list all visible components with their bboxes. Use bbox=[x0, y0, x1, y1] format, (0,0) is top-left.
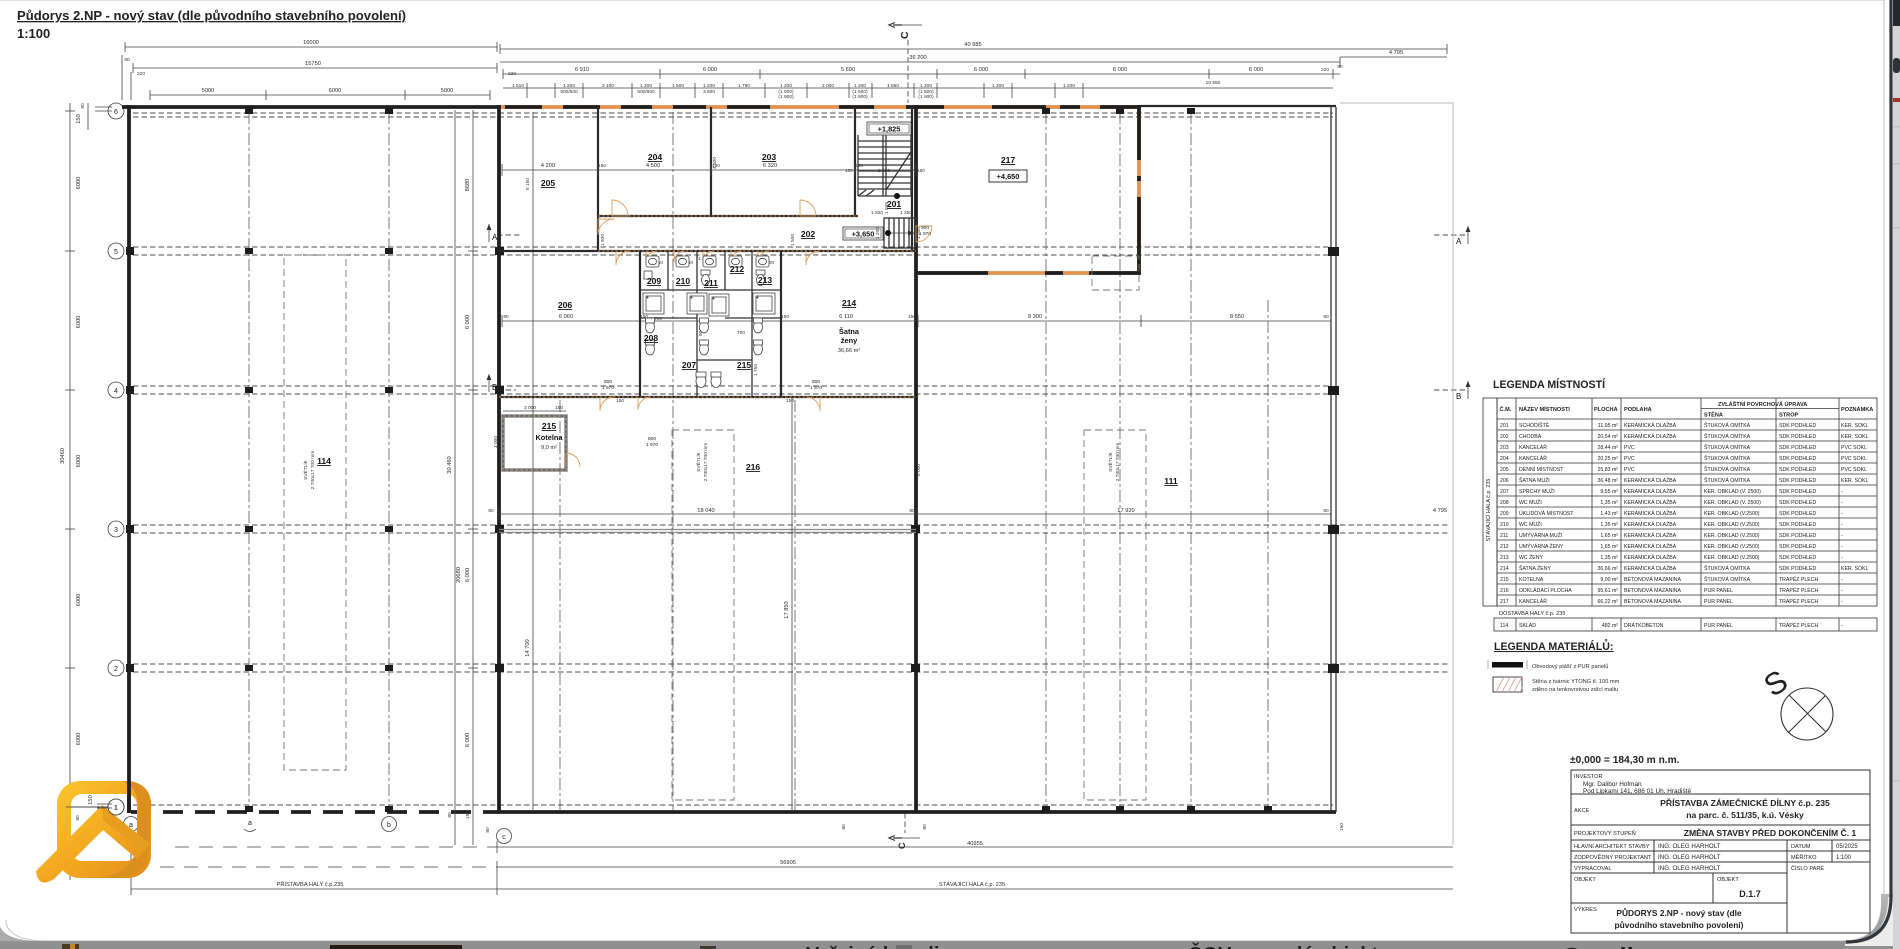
svg-text:800: 800 bbox=[648, 436, 656, 442]
svg-text:ŠTUKOVÁ OMÍTKA: ŠTUKOVÁ OMÍTKA bbox=[1704, 576, 1751, 583]
svg-text:Septik: Septik bbox=[1563, 942, 1642, 949]
svg-text:1 500: 1 500 bbox=[600, 234, 606, 246]
svg-text:-: - bbox=[1841, 522, 1843, 528]
svg-text:SCHODIŠTĚ: SCHODIŠTĚ bbox=[1519, 421, 1550, 429]
svg-text:KER. OBKLAD (V.2500): KER. OBKLAD (V.2500) bbox=[1704, 555, 1760, 561]
svg-text:1 500: 1 500 bbox=[790, 234, 796, 246]
svg-text:6 000: 6 000 bbox=[465, 733, 471, 747]
svg-text:202: 202 bbox=[1500, 434, 1509, 440]
svg-text:1 200: 1 200 bbox=[992, 83, 1004, 89]
svg-text:b: b bbox=[387, 822, 391, 829]
svg-text:212: 212 bbox=[730, 264, 745, 274]
svg-text:ŠTUKOVÁ OMÍTKA: ŠTUKOVÁ OMÍTKA bbox=[1704, 477, 1751, 484]
svg-text:40955: 40955 bbox=[967, 841, 983, 847]
svg-text:1,43 m²: 1,43 m² bbox=[1600, 511, 1618, 517]
svg-text:220: 220 bbox=[508, 71, 516, 77]
svg-text:-: - bbox=[1841, 588, 1843, 594]
svg-text:ŠTUKOVÁ OMÍTKA: ŠTUKOVÁ OMÍTKA bbox=[1704, 444, 1751, 451]
svg-text:150: 150 bbox=[616, 398, 624, 404]
svg-text:9,0 m²: 9,0 m² bbox=[541, 445, 557, 451]
svg-text:1 200: 1 200 bbox=[563, 83, 575, 89]
svg-text:1 850: 1 850 bbox=[887, 83, 899, 89]
svg-text:1 200: 1 200 bbox=[780, 83, 792, 89]
svg-text:ČÍSLO PARÉ: ČÍSLO PARÉ bbox=[1791, 865, 1824, 872]
svg-text:5 690: 5 690 bbox=[841, 67, 855, 73]
svg-text:1:100: 1:100 bbox=[1836, 855, 1852, 861]
svg-text:1,35 m²: 1,35 m² bbox=[1600, 522, 1618, 528]
svg-text:KANCELÁŘ: KANCELÁŘ bbox=[1519, 597, 1547, 605]
svg-text:B: B bbox=[1456, 392, 1461, 401]
svg-text:206: 206 bbox=[1500, 478, 1509, 484]
svg-text:700: 700 bbox=[737, 330, 745, 336]
svg-text:1 510: 1 510 bbox=[512, 83, 524, 89]
svg-text:2 300: 2 300 bbox=[878, 168, 890, 174]
svg-text:KOTELNA: KOTELNA bbox=[1519, 577, 1544, 583]
svg-text:80: 80 bbox=[75, 815, 81, 821]
svg-text:14 700: 14 700 bbox=[525, 639, 531, 656]
svg-text:PVC SOKL: PVC SOKL bbox=[1841, 456, 1867, 462]
svg-text:4 795: 4 795 bbox=[1433, 508, 1447, 514]
svg-text:6 000: 6 000 bbox=[703, 67, 717, 73]
svg-text:C: C bbox=[899, 31, 911, 39]
svg-text:10 550: 10 550 bbox=[1206, 80, 1221, 86]
svg-text:DENNÍ MÍSTNOST: DENNÍ MÍSTNOST bbox=[1519, 466, 1564, 473]
svg-text:PLOCHA: PLOCHA bbox=[1594, 407, 1618, 413]
svg-text:KER. SOKL: KER. SOKL bbox=[1841, 423, 1869, 429]
svg-text:220: 220 bbox=[137, 71, 145, 77]
svg-text:25,83 m²: 25,83 m² bbox=[1598, 467, 1619, 473]
svg-text:500/600: 500/600 bbox=[637, 89, 655, 95]
svg-text:SDK PODHLED: SDK PODHLED bbox=[1779, 533, 1816, 539]
svg-text:+4,650: +4,650 bbox=[997, 172, 1020, 181]
svg-text:206: 206 bbox=[558, 300, 573, 310]
svg-text:SDK PODHLED: SDK PODHLED bbox=[1779, 555, 1816, 561]
svg-text:150: 150 bbox=[88, 795, 94, 805]
svg-text:VYPRACOVAL: VYPRACOVAL bbox=[1574, 866, 1612, 872]
svg-text:150: 150 bbox=[555, 405, 563, 411]
svg-text:1 200: 1 200 bbox=[1063, 83, 1075, 89]
svg-text:4: 4 bbox=[114, 388, 118, 395]
svg-text:1 000: 1 000 bbox=[822, 83, 834, 89]
svg-text:1 970: 1 970 bbox=[646, 442, 658, 448]
svg-text:PVC: PVC bbox=[1624, 445, 1635, 451]
svg-text:80: 80 bbox=[447, 812, 453, 818]
svg-text:PUR PANEL: PUR PANEL bbox=[1704, 588, 1733, 594]
svg-text:SKLAD: SKLAD bbox=[1519, 623, 1536, 629]
svg-text:KERAMICKÁ DLAŽBA: KERAMICKÁ DLAŽBA bbox=[1624, 498, 1677, 506]
svg-text:WC MUŽI: WC MUŽI bbox=[1519, 498, 1542, 506]
svg-text:1 320: 1 320 bbox=[871, 210, 883, 216]
svg-text:SPRCHY MUŽI: SPRCHY MUŽI bbox=[1519, 487, 1555, 495]
svg-text:6000: 6000 bbox=[329, 88, 342, 94]
svg-text:4 500: 4 500 bbox=[646, 163, 660, 169]
svg-text:30 460: 30 460 bbox=[447, 456, 453, 473]
svg-text:OBJEKT: OBJEKT bbox=[1717, 877, 1739, 883]
svg-text:WC ŽENY: WC ŽENY bbox=[1519, 553, 1543, 561]
svg-text:SDK PODHLED: SDK PODHLED bbox=[1779, 511, 1816, 517]
svg-text:c: c bbox=[502, 834, 506, 841]
svg-text:-: - bbox=[1841, 555, 1843, 561]
svg-text:4 200: 4 200 bbox=[541, 163, 555, 169]
svg-text:STÁVAJÍCÍ HALA č.p. 235: STÁVAJÍCÍ HALA č.p. 235 bbox=[1485, 479, 1492, 542]
svg-text:SDK PODHLED: SDK PODHLED bbox=[1779, 544, 1816, 550]
svg-text:2 700x17 700 mm: 2 700x17 700 mm bbox=[703, 443, 709, 481]
svg-text:215: 215 bbox=[1500, 577, 1509, 583]
svg-text:TRAPÉZ PLECH: TRAPÉZ PLECH bbox=[1779, 587, 1818, 594]
svg-text:KERAMICKÁ DLAŽBA: KERAMICKÁ DLAŽBA bbox=[1624, 487, 1677, 495]
svg-text:80: 80 bbox=[1323, 314, 1329, 320]
svg-text:ŠATNA ŽENY: ŠATNA ŽENY bbox=[1519, 564, 1551, 572]
svg-text:KER. SOKL: KER. SOKL bbox=[1841, 478, 1869, 484]
svg-text:PUR PANEL: PUR PANEL bbox=[1704, 599, 1733, 605]
svg-text:SDK PODHLED: SDK PODHLED bbox=[1779, 445, 1816, 451]
svg-text:6000: 6000 bbox=[76, 177, 82, 190]
svg-text:80: 80 bbox=[922, 824, 928, 830]
svg-text:BETONOVÁ MAZANINA: BETONOVÁ MAZANINA bbox=[1624, 576, 1682, 583]
svg-text:80: 80 bbox=[80, 103, 86, 109]
svg-text:TRAPÉZ PLECH: TRAPÉZ PLECH bbox=[1779, 598, 1818, 605]
svg-text:SDK PODHLED: SDK PODHLED bbox=[1779, 522, 1816, 528]
svg-text:+1,825: +1,825 bbox=[878, 125, 901, 134]
svg-text:1,35 m²: 1,35 m² bbox=[1600, 500, 1618, 506]
svg-text:PŮDORYS 2.NP - nový stav (dle: PŮDORYS 2.NP - nový stav (dle bbox=[1616, 907, 1742, 918]
svg-text:6000: 6000 bbox=[76, 594, 82, 607]
svg-text:ZVLÁŠTNÍ POVRCHOVÁ ÚPRAVA: ZVLÁŠTNÍ POVRCHOVÁ ÚPRAVA bbox=[1718, 400, 1807, 408]
svg-text:2 100: 2 100 bbox=[602, 83, 614, 89]
svg-text:KERAMICKÁ DLAŽBA: KERAMICKÁ DLAŽBA bbox=[1624, 520, 1677, 528]
svg-text:6 000: 6 000 bbox=[465, 315, 471, 329]
svg-text:17 850: 17 850 bbox=[784, 601, 790, 618]
svg-text:SDK PODHLED: SDK PODHLED bbox=[1779, 456, 1816, 462]
svg-text:(1 900): (1 900) bbox=[918, 94, 934, 100]
svg-text:6 000: 6 000 bbox=[465, 568, 471, 582]
svg-text:KER. OBKLAD (V. 2500): KER. OBKLAD (V. 2500) bbox=[1704, 500, 1761, 506]
svg-text:1 500: 1 500 bbox=[672, 83, 684, 89]
svg-text:208: 208 bbox=[644, 333, 659, 343]
svg-text:1 970: 1 970 bbox=[810, 385, 822, 391]
svg-text:20,54 m²: 20,54 m² bbox=[1598, 434, 1619, 440]
svg-text:POZNÁMKA: POZNÁMKA bbox=[1841, 406, 1873, 413]
svg-text:KERAMICKÁ DLAŽBA: KERAMICKÁ DLAŽBA bbox=[1624, 553, 1677, 561]
svg-text:220: 220 bbox=[1321, 67, 1329, 73]
svg-text:±0,000 = 184,30 m n.m.: ±0,000 = 184,30 m n.m. bbox=[1570, 755, 1680, 766]
svg-text:PŘÍSTAVBA HALY č.p.235: PŘÍSTAVBA HALY č.p.235 bbox=[277, 880, 344, 888]
svg-text:150: 150 bbox=[781, 314, 789, 320]
svg-text:4 500: 4 500 bbox=[712, 157, 718, 169]
svg-text:80: 80 bbox=[488, 508, 494, 514]
svg-text:+3,650: +3,650 bbox=[852, 230, 875, 239]
svg-text:95,61 m²: 95,61 m² bbox=[1598, 588, 1619, 594]
svg-text:150: 150 bbox=[598, 163, 606, 169]
svg-text:(1 900): (1 900) bbox=[852, 94, 868, 100]
svg-text:KER. OBKLAD (V. 2500): KER. OBKLAD (V. 2500) bbox=[1704, 489, 1761, 495]
svg-text:211: 211 bbox=[1500, 533, 1508, 539]
svg-text:ŠTUKOVÁ OMÍTKA: ŠTUKOVÁ OMÍTKA bbox=[1704, 565, 1751, 572]
svg-text:Půdorys 2.NP - nový stav (dle: Půdorys 2.NP - nový stav (dle původního … bbox=[17, 8, 406, 23]
svg-text:D.1.7: D.1.7 bbox=[1739, 889, 1761, 899]
svg-text:KANCELÁŘ: KANCELÁŘ bbox=[1519, 454, 1547, 462]
svg-text:Č.M.: Č.M. bbox=[1500, 406, 1512, 413]
svg-text:ING. OLEG HARHOLT: ING. OLEG HARHOLT bbox=[1658, 843, 1721, 850]
svg-text:208: 208 bbox=[1500, 500, 1509, 506]
svg-text:PODLAHA: PODLAHA bbox=[1624, 407, 1652, 413]
svg-text:A: A bbox=[1456, 237, 1462, 246]
svg-text:482 m²: 482 m² bbox=[1602, 623, 1618, 629]
svg-text:800: 800 bbox=[604, 379, 612, 385]
svg-text:KER. OBKLAD (V.2500): KER. OBKLAD (V.2500) bbox=[1704, 511, 1760, 517]
svg-text:5000: 5000 bbox=[441, 88, 454, 94]
svg-text:204: 204 bbox=[648, 152, 663, 162]
svg-text:150: 150 bbox=[855, 163, 863, 169]
svg-text:4 795: 4 795 bbox=[1389, 50, 1403, 56]
svg-text:209: 209 bbox=[1500, 511, 1509, 517]
svg-text:217: 217 bbox=[1001, 155, 1016, 165]
svg-text:ŠTUKOVÁ OMÍTKA: ŠTUKOVÁ OMÍTKA bbox=[1704, 422, 1751, 429]
svg-text:212: 212 bbox=[1500, 544, 1509, 550]
svg-text:8680: 8680 bbox=[465, 179, 471, 192]
svg-text:150: 150 bbox=[917, 168, 925, 174]
svg-text:6000: 6000 bbox=[76, 455, 82, 468]
svg-text:ŠTUKOVÁ OMÍTKA: ŠTUKOVÁ OMÍTKA bbox=[1704, 433, 1751, 440]
svg-text:PUR PANEL: PUR PANEL bbox=[1704, 623, 1733, 629]
svg-text:KER. OBKLAD (V.2500): KER. OBKLAD (V.2500) bbox=[1704, 544, 1760, 550]
svg-text:MĚŘÍTKO: MĚŘÍTKO bbox=[1791, 853, 1817, 861]
svg-text:3 600: 3 600 bbox=[703, 89, 715, 95]
svg-text:C: C bbox=[897, 842, 907, 849]
svg-text:1 970: 1 970 bbox=[919, 231, 931, 237]
svg-text:66,22 m²: 66,22 m² bbox=[1598, 599, 1619, 605]
svg-text:900: 900 bbox=[921, 225, 929, 231]
svg-text:80: 80 bbox=[124, 57, 130, 63]
svg-text:na parc. č. 511/35, k.ú. Vésky: na parc. č. 511/35, k.ú. Vésky bbox=[1686, 810, 1804, 820]
svg-text:-: - bbox=[1841, 577, 1843, 583]
svg-text:1 790: 1 790 bbox=[738, 83, 750, 89]
svg-text:OBJEKT: OBJEKT bbox=[1574, 877, 1596, 883]
svg-text:5000: 5000 bbox=[202, 88, 215, 94]
svg-text:2 700x17 700 mm: 2 700x17 700 mm bbox=[1115, 443, 1121, 481]
svg-text:KERAMICKÁ DLAŽBA: KERAMICKÁ DLAŽBA bbox=[1624, 542, 1677, 550]
svg-text:ZODPOVĚDNÝ PROJEKTANT: ZODPOVĚDNÝ PROJEKTANT bbox=[1574, 853, 1652, 861]
svg-text:LEGENDA MATERIÁLŮ:: LEGENDA MATERIÁLŮ: bbox=[1494, 639, 1613, 653]
svg-text:Kotelna: Kotelna bbox=[535, 433, 563, 442]
svg-text:Obvodový plášť z PUR panelů: Obvodový plášť z PUR panelů bbox=[1532, 663, 1608, 670]
svg-text:80: 80 bbox=[841, 824, 847, 830]
svg-text:ŠATNA MUŽI: ŠATNA MUŽI bbox=[1519, 476, 1550, 484]
svg-text:ODKLÁDACÍ PLOCHA: ODKLÁDACÍ PLOCHA bbox=[1519, 587, 1572, 594]
svg-text:SDK PODHLED: SDK PODHLED bbox=[1779, 489, 1816, 495]
svg-text:215: 215 bbox=[542, 421, 557, 431]
svg-text:6 000: 6 000 bbox=[916, 464, 922, 476]
svg-text:150: 150 bbox=[845, 168, 853, 174]
svg-text:STÁVAJÍCÍ HALA č.p. 235: STÁVAJÍCÍ HALA č.p. 235 bbox=[939, 881, 1005, 888]
svg-text:80: 80 bbox=[1337, 64, 1343, 70]
svg-text:1 200: 1 200 bbox=[854, 83, 866, 89]
svg-text:SDK PODHLED: SDK PODHLED bbox=[1779, 467, 1816, 473]
svg-text:800: 800 bbox=[812, 379, 820, 385]
svg-text:-: - bbox=[1841, 500, 1843, 506]
svg-text:TRAPÉZ PLECH: TRAPÉZ PLECH bbox=[1779, 576, 1818, 583]
svg-text:Šatna: Šatna bbox=[839, 327, 860, 336]
svg-text:ŠTUKOVÁ OMÍTKA: ŠTUKOVÁ OMÍTKA bbox=[1704, 455, 1751, 462]
svg-text:150: 150 bbox=[908, 314, 916, 320]
svg-text:15750: 15750 bbox=[305, 61, 321, 67]
svg-text:ŠTUKOVÁ OMÍTKA: ŠTUKOVÁ OMÍTKA bbox=[1704, 466, 1751, 473]
svg-text:18 040: 18 040 bbox=[697, 508, 714, 514]
svg-text:KERAMICKÁ DLAŽBA: KERAMICKÁ DLAŽBA bbox=[1624, 509, 1677, 517]
svg-text:217: 217 bbox=[1500, 599, 1509, 605]
svg-text:-: - bbox=[1841, 511, 1843, 517]
svg-text:150: 150 bbox=[786, 398, 794, 404]
svg-text:216: 216 bbox=[746, 462, 761, 472]
svg-text:SDK PODHLED: SDK PODHLED bbox=[1779, 423, 1816, 429]
svg-text:6: 6 bbox=[114, 109, 118, 116]
svg-text:213: 213 bbox=[1500, 555, 1509, 561]
svg-text:1 750: 1 750 bbox=[753, 364, 759, 376]
svg-text:215: 215 bbox=[737, 360, 752, 370]
svg-text:KERAMICKÁ DLAŽBA: KERAMICKÁ DLAŽBA bbox=[1624, 432, 1677, 440]
svg-text:216: 216 bbox=[1500, 588, 1509, 594]
svg-text:80: 80 bbox=[1323, 508, 1329, 514]
svg-text:PROJEKTOVÝ STUPEŇ: PROJEKTOVÝ STUPEŇ bbox=[1574, 830, 1636, 837]
svg-text:36,66 m²: 36,66 m² bbox=[1598, 566, 1619, 572]
svg-text:SDK PODHLED: SDK PODHLED bbox=[1779, 500, 1816, 506]
svg-text:6 320: 6 320 bbox=[763, 163, 777, 169]
svg-text:a: a bbox=[248, 820, 252, 827]
svg-text:-: - bbox=[1841, 544, 1843, 550]
svg-text:214: 214 bbox=[1500, 566, 1509, 572]
svg-text:204: 204 bbox=[1500, 456, 1509, 462]
svg-text:28,44 m²: 28,44 m² bbox=[1598, 445, 1619, 451]
svg-text:STĚNA: STĚNA bbox=[1704, 411, 1723, 419]
svg-text:114: 114 bbox=[317, 456, 331, 466]
svg-text:202: 202 bbox=[801, 229, 816, 239]
svg-text:201: 201 bbox=[887, 199, 902, 209]
svg-text:9,55 m²: 9,55 m² bbox=[1600, 489, 1618, 495]
svg-text:36,66 m²: 36,66 m² bbox=[838, 348, 861, 354]
svg-text:80: 80 bbox=[909, 508, 915, 514]
svg-text:BETONOVÁ MAZANINA: BETONOVÁ MAZANINA bbox=[1624, 598, 1682, 605]
svg-text:KANCELÁŘ: KANCELÁŘ bbox=[1519, 443, 1547, 451]
svg-text:36,48 m²: 36,48 m² bbox=[1598, 478, 1619, 484]
svg-text:původního stavebního povolení): původního stavebního povolení) bbox=[1615, 920, 1744, 930]
svg-text:36 200: 36 200 bbox=[909, 55, 926, 61]
svg-text:6 000: 6 000 bbox=[1113, 67, 1127, 73]
svg-text:6 910: 6 910 bbox=[575, 67, 589, 73]
svg-text:Pod Lipkami 141, 686 01 Uh. Hr: Pod Lipkami 141, 686 01 Uh. Hradiště bbox=[1583, 788, 1691, 795]
svg-text:-: - bbox=[1841, 489, 1843, 495]
svg-text:6 150: 6 150 bbox=[525, 178, 531, 190]
svg-text:1 200: 1 200 bbox=[920, 83, 932, 89]
svg-text:213: 213 bbox=[758, 275, 773, 285]
svg-text:KER. OBKLAD (V.2500): KER. OBKLAD (V.2500) bbox=[1704, 522, 1760, 528]
svg-text:DRÁTKOBETON: DRÁTKOBETON bbox=[1624, 622, 1664, 629]
svg-text:203: 203 bbox=[762, 152, 777, 162]
svg-text:KER. SOKL: KER. SOKL bbox=[1841, 434, 1869, 440]
svg-text:SDK PODHLED: SDK PODHLED bbox=[1779, 478, 1816, 484]
svg-text:BETONOVÁ MAZANINA: BETONOVÁ MAZANINA bbox=[1624, 587, 1682, 594]
svg-text:NÁZEV MÍSTNOSTI: NÁZEV MÍSTNOSTI bbox=[1519, 405, 1570, 413]
svg-text:-: - bbox=[1841, 599, 1843, 605]
svg-text:114: 114 bbox=[1500, 623, 1508, 629]
svg-text:211: 211 bbox=[704, 278, 718, 288]
svg-text:ÚKLIDOVÁ MÍSTNOST: ÚKLIDOVÁ MÍSTNOST bbox=[1519, 510, 1574, 517]
svg-text:PVC: PVC bbox=[1624, 456, 1635, 462]
svg-text:1 250: 1 250 bbox=[900, 210, 912, 216]
svg-text:150: 150 bbox=[1339, 823, 1345, 831]
svg-text:2: 2 bbox=[114, 666, 118, 673]
svg-text:1 200: 1 200 bbox=[875, 227, 881, 239]
svg-text:6000: 6000 bbox=[76, 733, 82, 746]
svg-text:1,65 m²: 1,65 m² bbox=[1600, 544, 1618, 550]
svg-text:zděno na tenkovrstvou zdící ma: zděno na tenkovrstvou zdící maltu bbox=[1532, 687, 1618, 693]
svg-text:PVC SOKL: PVC SOKL bbox=[1841, 467, 1867, 473]
svg-text:KERAMICKÁ DLAŽBA: KERAMICKÁ DLAŽBA bbox=[1624, 531, 1677, 539]
svg-text:210: 210 bbox=[676, 276, 691, 286]
svg-text:6 000: 6 000 bbox=[1249, 67, 1263, 73]
svg-text:1,35 m²: 1,35 m² bbox=[1600, 555, 1618, 561]
svg-text:CHODBA: CHODBA bbox=[1519, 434, 1542, 440]
svg-text:214: 214 bbox=[842, 298, 857, 308]
svg-text:-: - bbox=[1841, 623, 1843, 629]
svg-text:Stěna z tvárnic YTONG tl. 100: Stěna z tvárnic YTONG tl. 100 mm bbox=[1532, 679, 1620, 685]
svg-text:Mgr. Dalibor Hofman: Mgr. Dalibor Hofman bbox=[1583, 781, 1642, 788]
svg-text:205: 205 bbox=[541, 178, 556, 188]
svg-text:ING. OLEG HARHOLT: ING. OLEG HARHOLT bbox=[1658, 865, 1721, 872]
svg-text:1,65 m²: 1,65 m² bbox=[1600, 533, 1618, 539]
svg-text:ING. OLEG HARHOLT: ING. OLEG HARHOLT bbox=[1658, 854, 1721, 861]
svg-text:UMÝVÁRNA MUŽI: UMÝVÁRNA MUŽI bbox=[1519, 531, 1562, 539]
svg-text:207: 207 bbox=[1500, 489, 1509, 495]
svg-text:HLAVNÍ ARCHITEKT STAVBY: HLAVNÍ ARCHITEKT STAVBY bbox=[1574, 843, 1650, 850]
svg-text:6 060: 6 060 bbox=[559, 314, 573, 320]
svg-text:3 000: 3 000 bbox=[493, 436, 499, 448]
svg-text:Veřejná kanalizace: Veřejná kanalizace bbox=[806, 944, 983, 949]
svg-text:DOSTAVBA HALY č.p. 235: DOSTAVBA HALY č.p. 235 bbox=[1499, 611, 1565, 617]
svg-text:205: 205 bbox=[1500, 467, 1509, 473]
svg-text:20680: 20680 bbox=[456, 567, 462, 583]
svg-text:80: 80 bbox=[485, 827, 491, 833]
svg-text:(1 900): (1 900) bbox=[778, 94, 794, 100]
svg-text:17 920: 17 920 bbox=[1117, 508, 1134, 514]
svg-text:150: 150 bbox=[76, 114, 82, 124]
svg-text:KERAMICKÁ DLAŽBA: KERAMICKÁ DLAŽBA bbox=[1624, 421, 1677, 429]
svg-text:150: 150 bbox=[465, 811, 471, 819]
svg-text:ženy: ženy bbox=[841, 336, 858, 345]
svg-text:LEGENDA MÍSTNOSTÍ: LEGENDA MÍSTNOSTÍ bbox=[1493, 378, 1606, 391]
svg-text:9 300: 9 300 bbox=[1028, 314, 1042, 320]
svg-text:1 970: 1 970 bbox=[602, 385, 614, 391]
svg-text:203: 203 bbox=[1500, 445, 1509, 451]
svg-text:PVC SOKL: PVC SOKL bbox=[1841, 445, 1867, 451]
svg-text:80: 80 bbox=[503, 314, 509, 320]
svg-text:20,25 m²: 20,25 m² bbox=[1598, 456, 1619, 462]
svg-text:209: 209 bbox=[647, 276, 662, 286]
svg-text:9,00 m²: 9,00 m² bbox=[1600, 577, 1618, 583]
svg-text:DATUM: DATUM bbox=[1791, 844, 1811, 850]
svg-text:STROP: STROP bbox=[1779, 413, 1799, 419]
svg-text:30460: 30460 bbox=[60, 448, 66, 464]
svg-text:TRAPÉZ PLECH: TRAPÉZ PLECH bbox=[1779, 622, 1818, 629]
svg-text:56905: 56905 bbox=[780, 860, 796, 866]
svg-text:207: 207 bbox=[682, 360, 697, 370]
svg-text:-: - bbox=[1841, 533, 1843, 539]
svg-text:PVC: PVC bbox=[1624, 467, 1635, 473]
svg-text:3: 3 bbox=[114, 527, 118, 534]
svg-text:VÝKRES: VÝKRES bbox=[1574, 906, 1597, 913]
svg-text:UMÝVÁRNA ŽENY: UMÝVÁRNA ŽENY bbox=[1519, 542, 1564, 550]
svg-text:INVESTOR: INVESTOR bbox=[1574, 774, 1603, 780]
svg-text:40 985: 40 985 bbox=[964, 42, 981, 48]
